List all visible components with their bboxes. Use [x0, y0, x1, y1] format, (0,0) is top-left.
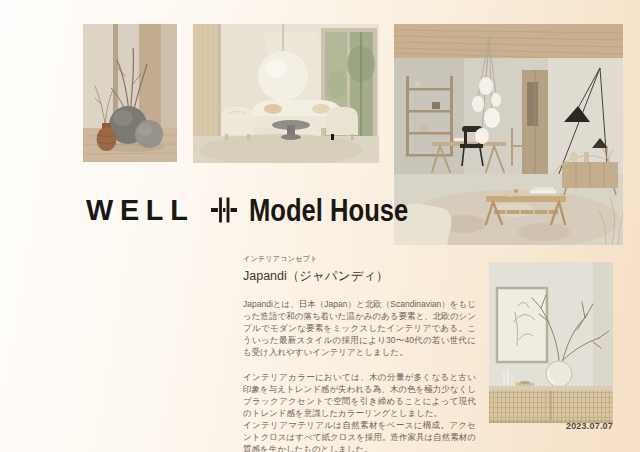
double-plus-icon [211, 196, 237, 224]
page-canvas: WELL Model House インテリアコンセプト Japandi（ジャパン… [0, 0, 640, 452]
glass-vase [546, 361, 572, 387]
photo-vases-still-life [83, 24, 177, 162]
concept-label: インテリアコンセプト [243, 253, 476, 265]
photo-living-room [193, 24, 379, 163]
concept-section: インテリアコンセプト Japandi（ジャパンディ） Japandiとは、日本（… [243, 253, 476, 452]
logo-lockup: WELL Model House [86, 192, 448, 228]
living-room-illustration [193, 24, 379, 163]
date-stamp: 2023.07.07 [566, 421, 613, 431]
brand-wordmark: WELL [86, 192, 194, 228]
product-wordmark: Model House [249, 192, 408, 228]
concept-paragraph-3: インテリアマテリアルは自然素材をベースに構成。アクセントクロスはすべて紙クロスを… [243, 419, 476, 452]
vases-illustration [83, 24, 177, 162]
concept-paragraph-2: インテリアカラーにおいては、木の分量が多くなると古い印象を与えトレンド感が失われ… [243, 371, 476, 419]
cane-weave-texture [489, 390, 613, 423]
framed-art [497, 288, 547, 362]
concept-paragraph-1: Japandiとは、日本（Japan）と北欧（Scandinavian）をもじっ… [243, 298, 476, 358]
concept-title: Japandi（ジャパンディ） [243, 268, 476, 285]
photo-branch-sideboard [489, 262, 613, 423]
